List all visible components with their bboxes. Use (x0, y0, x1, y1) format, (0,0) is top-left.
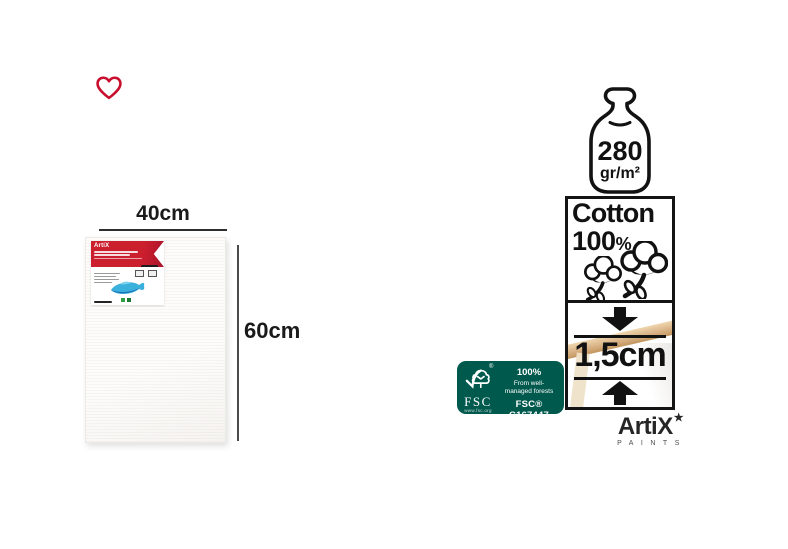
width-dimension-line (99, 229, 227, 231)
width-dimension-label: 40cm (99, 202, 227, 226)
package-label-lower (91, 267, 164, 305)
arrow-down-icon (602, 307, 638, 331)
brand-star-icon: ★ (674, 412, 683, 424)
fsc-tree-check-icon (464, 365, 492, 391)
package-text-line (94, 251, 138, 253)
brand-tagline: PAINTS (604, 440, 696, 447)
depth-spec-box: 1,5cm (565, 300, 675, 410)
fsc-text-block: 100% From well- managed forests FSC® C16… (499, 361, 564, 414)
fsc-badge: ® FSC www.fsc.org 100% From well- manage… (457, 361, 564, 414)
blue-fish-illustration (108, 278, 146, 298)
weight-unit: gr/m² (600, 165, 640, 182)
fsc-acronym: FSC (457, 395, 499, 408)
package-green-mark (127, 298, 131, 302)
height-dimension-line (237, 245, 239, 441)
weight-value: 280 (597, 136, 642, 166)
package-icon-chip (135, 270, 144, 277)
package-label: ArtiX (91, 241, 164, 305)
cotton-spec-box: Cotton 100% (565, 196, 675, 303)
fsc-percent: 100% (499, 367, 559, 378)
arrow-up-icon (602, 381, 638, 405)
product-photo-canvas[interactable]: ArtiX (85, 237, 226, 443)
package-text-line (94, 258, 142, 259)
package-barcode (94, 301, 112, 303)
depth-value: 1,5cm (568, 336, 672, 375)
brand-logo: ArtiX★ PAINTS (604, 415, 696, 447)
fsc-logo-block: ® FSC www.fsc.org (457, 361, 499, 414)
wishlist-button[interactable] (95, 75, 123, 101)
package-text-line (94, 254, 130, 256)
cotton-flower-icon (618, 241, 668, 299)
package-label-red-banner: ArtiX (91, 241, 164, 267)
fsc-line2: managed forests (499, 388, 559, 396)
brand-name: ArtiX★ (604, 415, 696, 439)
weight-spec-icon: 280 gr/m² (585, 86, 655, 196)
depth-bottom-line (574, 377, 666, 380)
product-image-viewer: ArtiX (0, 0, 788, 549)
package-fineprint (94, 273, 120, 274)
package-brand: ArtiX (94, 243, 164, 249)
package-fineprint (94, 276, 116, 277)
fsc-url: www.fsc.org (457, 408, 499, 413)
registered-mark: ® (489, 364, 493, 370)
cotton-flower-icon (582, 256, 622, 302)
package-icon-chip (148, 270, 157, 277)
spec-column: Cotton 100% (565, 196, 675, 410)
brand-wordmark: ArtiX (618, 413, 673, 440)
package-green-mark (121, 298, 125, 302)
cotton-word: Cotton (572, 200, 668, 228)
fsc-line1: From well- (499, 380, 559, 388)
heart-icon (95, 75, 123, 101)
cotton-value: 100 (572, 226, 616, 256)
height-dimension-label: 60cm (244, 318, 300, 344)
fsc-code: FSC® C167447 (499, 399, 559, 421)
